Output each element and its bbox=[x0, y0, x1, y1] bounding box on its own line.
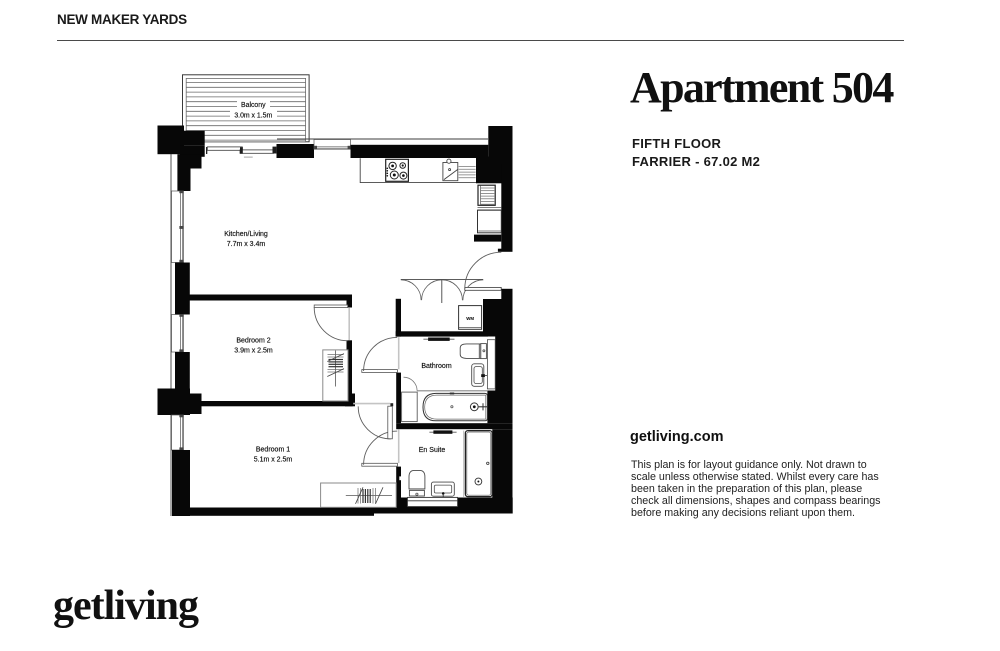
svg-text:WM: WM bbox=[466, 316, 474, 321]
svg-text:3.9m x 2.5m: 3.9m x 2.5m bbox=[234, 347, 273, 354]
svg-text:5.1m x 2.5m: 5.1m x 2.5m bbox=[254, 456, 293, 463]
svg-text:Bedroom 1: Bedroom 1 bbox=[256, 447, 290, 454]
svg-text:Bedroom 2: Bedroom 2 bbox=[236, 338, 270, 345]
svg-text:En Suite: En Suite bbox=[419, 447, 446, 454]
svg-text:Bathroom: Bathroom bbox=[421, 363, 452, 370]
svg-text:Balcony: Balcony bbox=[241, 102, 266, 109]
svg-text:3.0m x 1.5m: 3.0m x 1.5m bbox=[234, 112, 272, 119]
svg-text:7.7m x 3.4m: 7.7m x 3.4m bbox=[227, 241, 266, 248]
svg-text:Kitchen/Living: Kitchen/Living bbox=[224, 231, 268, 238]
